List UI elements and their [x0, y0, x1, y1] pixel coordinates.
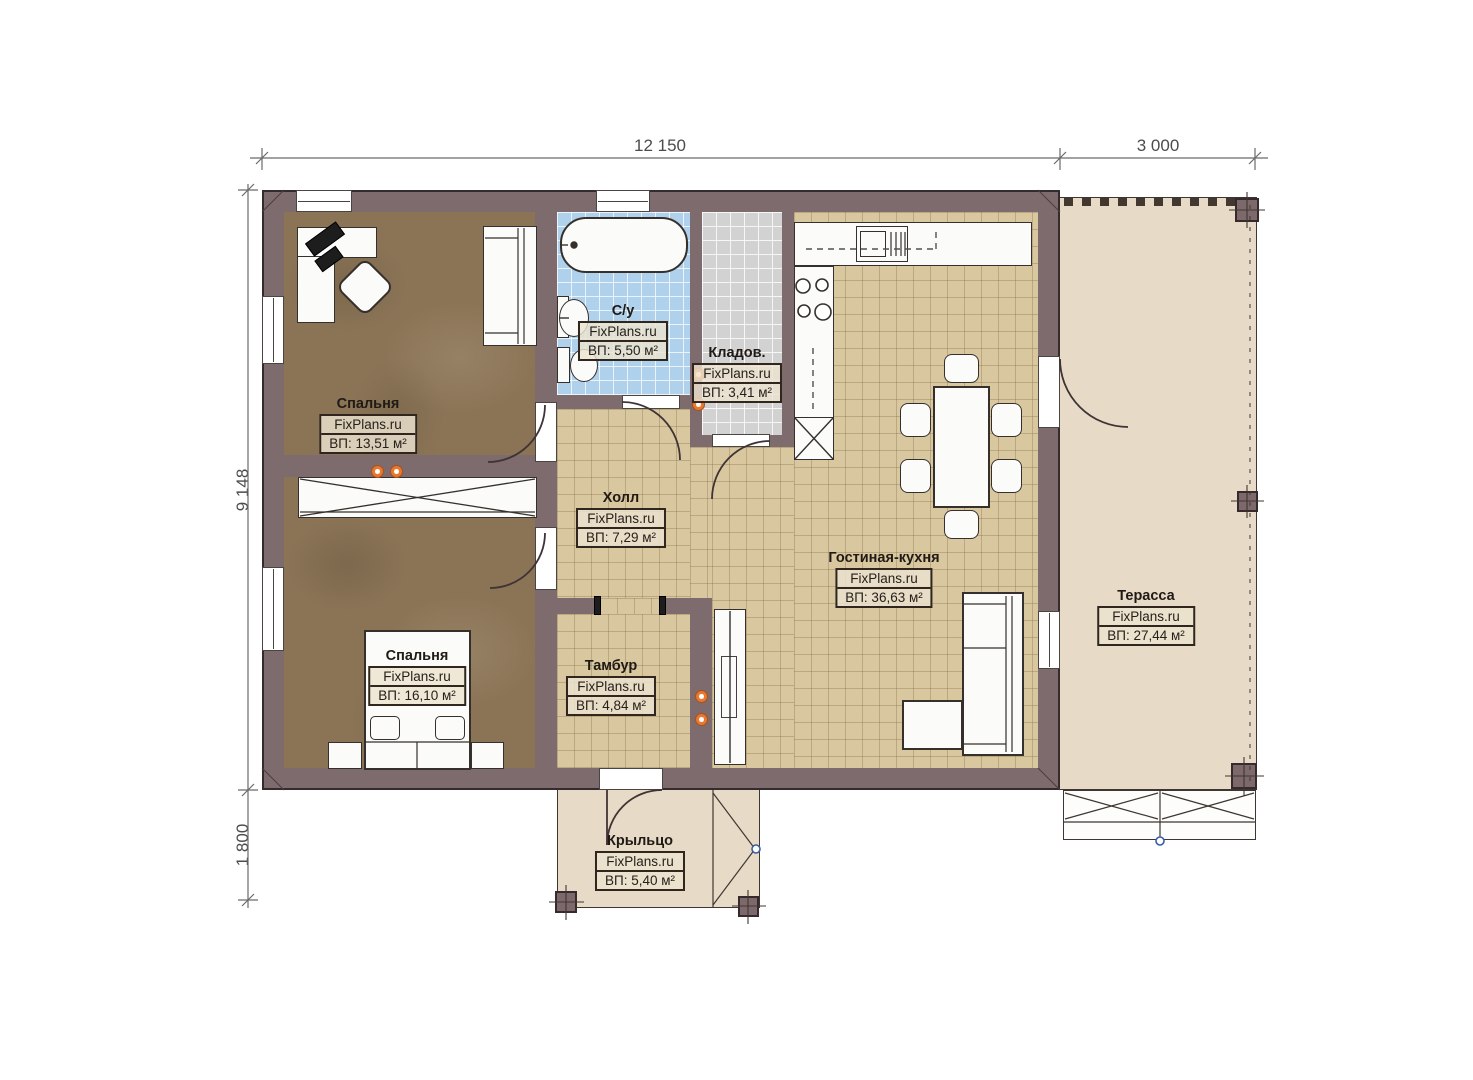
room-label-terrace: Терасса FixPlans.ru ВП: 27,44 м² — [1097, 588, 1195, 646]
pillow-left — [370, 716, 400, 740]
terrace-edge-hatch — [1064, 198, 1236, 206]
room-label-bathroom: С/у FixPlans.ru ВП: 5,50 м² — [578, 303, 668, 361]
dim-label-width-house: 12 150 — [634, 136, 686, 156]
room-name: Спальня — [368, 648, 466, 664]
room-label-bedroom-2: Спальня FixPlans.ru ВП: 16,10 м² — [368, 648, 466, 706]
sofa-chaise — [902, 700, 963, 750]
room-area: ВП: 27,44 м² — [1099, 625, 1193, 644]
brand-watermark: FixPlans.ru — [370, 668, 464, 685]
room-label-vestibule: Тамбур FixPlans.ru ВП: 4,84 м² — [566, 658, 656, 716]
window-bedroom1-left — [262, 296, 284, 364]
dining-chair-right-1 — [991, 403, 1022, 437]
hall-living-passage-floor — [690, 447, 712, 598]
room-name: Спальня — [319, 396, 417, 412]
room-label-porch: Крыльцо FixPlans.ru ВП: 5,40 м² — [595, 833, 685, 891]
kitchen-sink-basin — [860, 231, 886, 257]
toilet-tank — [557, 347, 570, 383]
doorpost-vestibule-left — [594, 596, 601, 615]
room-label-bedroom-1: Спальня FixPlans.ru ВП: 13,51 м² — [319, 396, 417, 454]
kitchen-counter-top — [794, 222, 1032, 266]
brand-watermark: FixPlans.ru — [578, 510, 664, 527]
dining-table — [933, 386, 990, 508]
window-bedroom1-top — [296, 190, 352, 212]
bathtub — [560, 217, 688, 273]
door-opening-bedroom1 — [535, 402, 557, 462]
room-area: ВП: 5,50 м² — [580, 340, 666, 359]
room-name: Крыльцо — [595, 833, 685, 849]
dining-chair-bottom — [944, 510, 979, 539]
terrace-post-bottom — [1231, 763, 1257, 789]
room-area: ВП: 3,41 м² — [694, 382, 780, 401]
brand-watermark: FixPlans.ru — [568, 678, 654, 695]
door-opening-entrance — [599, 768, 663, 790]
pillow-right — [435, 716, 465, 740]
door-opening-bathroom — [622, 395, 680, 409]
nightstand-left — [328, 742, 362, 769]
room-name: Гостиная-кухня — [828, 550, 939, 566]
window-living-right — [1038, 611, 1060, 669]
room-area: ВП: 7,29 м² — [578, 527, 664, 546]
dim-label-height-porch: 1 800 — [233, 824, 253, 867]
brand-watermark: FixPlans.ru — [694, 365, 780, 382]
brand-watermark: FixPlans.ru — [321, 416, 415, 433]
opening-hall-vestibule — [600, 598, 660, 614]
hallway-cabinet-mirror — [721, 656, 737, 718]
room-name: Холл — [576, 490, 666, 506]
brand-watermark: FixPlans.ru — [837, 570, 931, 587]
brand-watermark: FixPlans.ru — [597, 853, 683, 870]
outlet-dot — [390, 465, 403, 478]
window-bathroom-top — [596, 190, 650, 212]
dining-chair-left-1 — [900, 403, 931, 437]
outlet-dot — [371, 465, 384, 478]
room-area: ВП: 5,40 м² — [597, 870, 683, 889]
room-area: ВП: 4,84 м² — [568, 695, 654, 714]
room-name: С/у — [578, 303, 668, 319]
dim-label-width-terrace: 3 000 — [1137, 136, 1180, 156]
room-label-storage: Кладов. FixPlans.ru ВП: 3,41 м² — [692, 345, 782, 403]
room-area: ВП: 16,10 м² — [370, 685, 464, 704]
room-name: Терасса — [1097, 588, 1195, 604]
brand-watermark: FixPlans.ru — [580, 323, 666, 340]
room-area: ВП: 36,63 м² — [837, 587, 931, 606]
nightstand-right — [471, 742, 504, 769]
door-opening-terrace — [1038, 356, 1060, 428]
doorpost-vestibule-right — [659, 596, 666, 615]
room-label-living-kitchen: Гостиная-кухня FixPlans.ru ВП: 36,63 м² — [828, 550, 939, 608]
dim-label-height-house: 9 148 — [233, 469, 253, 512]
window-bedroom2-left — [262, 567, 284, 651]
room-name: Тамбур — [566, 658, 656, 674]
dining-chair-top — [944, 354, 979, 383]
outlet-dot — [695, 690, 708, 703]
sofa-main — [962, 592, 1024, 756]
wardrobe — [298, 477, 537, 518]
outlet-dot — [695, 713, 708, 726]
porch-post-right — [738, 896, 759, 917]
bedroom1-sofa — [483, 226, 537, 346]
dining-chair-right-2 — [991, 459, 1022, 493]
floor-plan-canvas: 12 150 3 000 9 148 1 800 Спальня FixPlan… — [0, 0, 1473, 1080]
dining-chair-left-2 — [900, 459, 931, 493]
porch-post-left — [555, 891, 577, 913]
terrace-post-top — [1235, 198, 1259, 222]
room-label-hall: Холл FixPlans.ru ВП: 7,29 м² — [576, 490, 666, 548]
fridge-cabinet — [794, 417, 834, 460]
terrace-post-mid — [1237, 491, 1258, 512]
door-opening-bedroom2 — [535, 527, 557, 590]
brand-watermark: FixPlans.ru — [1099, 608, 1193, 625]
terrace-floor — [1060, 197, 1257, 790]
terrace-steps — [1063, 790, 1256, 840]
door-leaf-storage — [712, 434, 770, 447]
room-area: ВП: 13,51 м² — [321, 433, 415, 452]
room-name: Кладов. — [692, 345, 782, 361]
